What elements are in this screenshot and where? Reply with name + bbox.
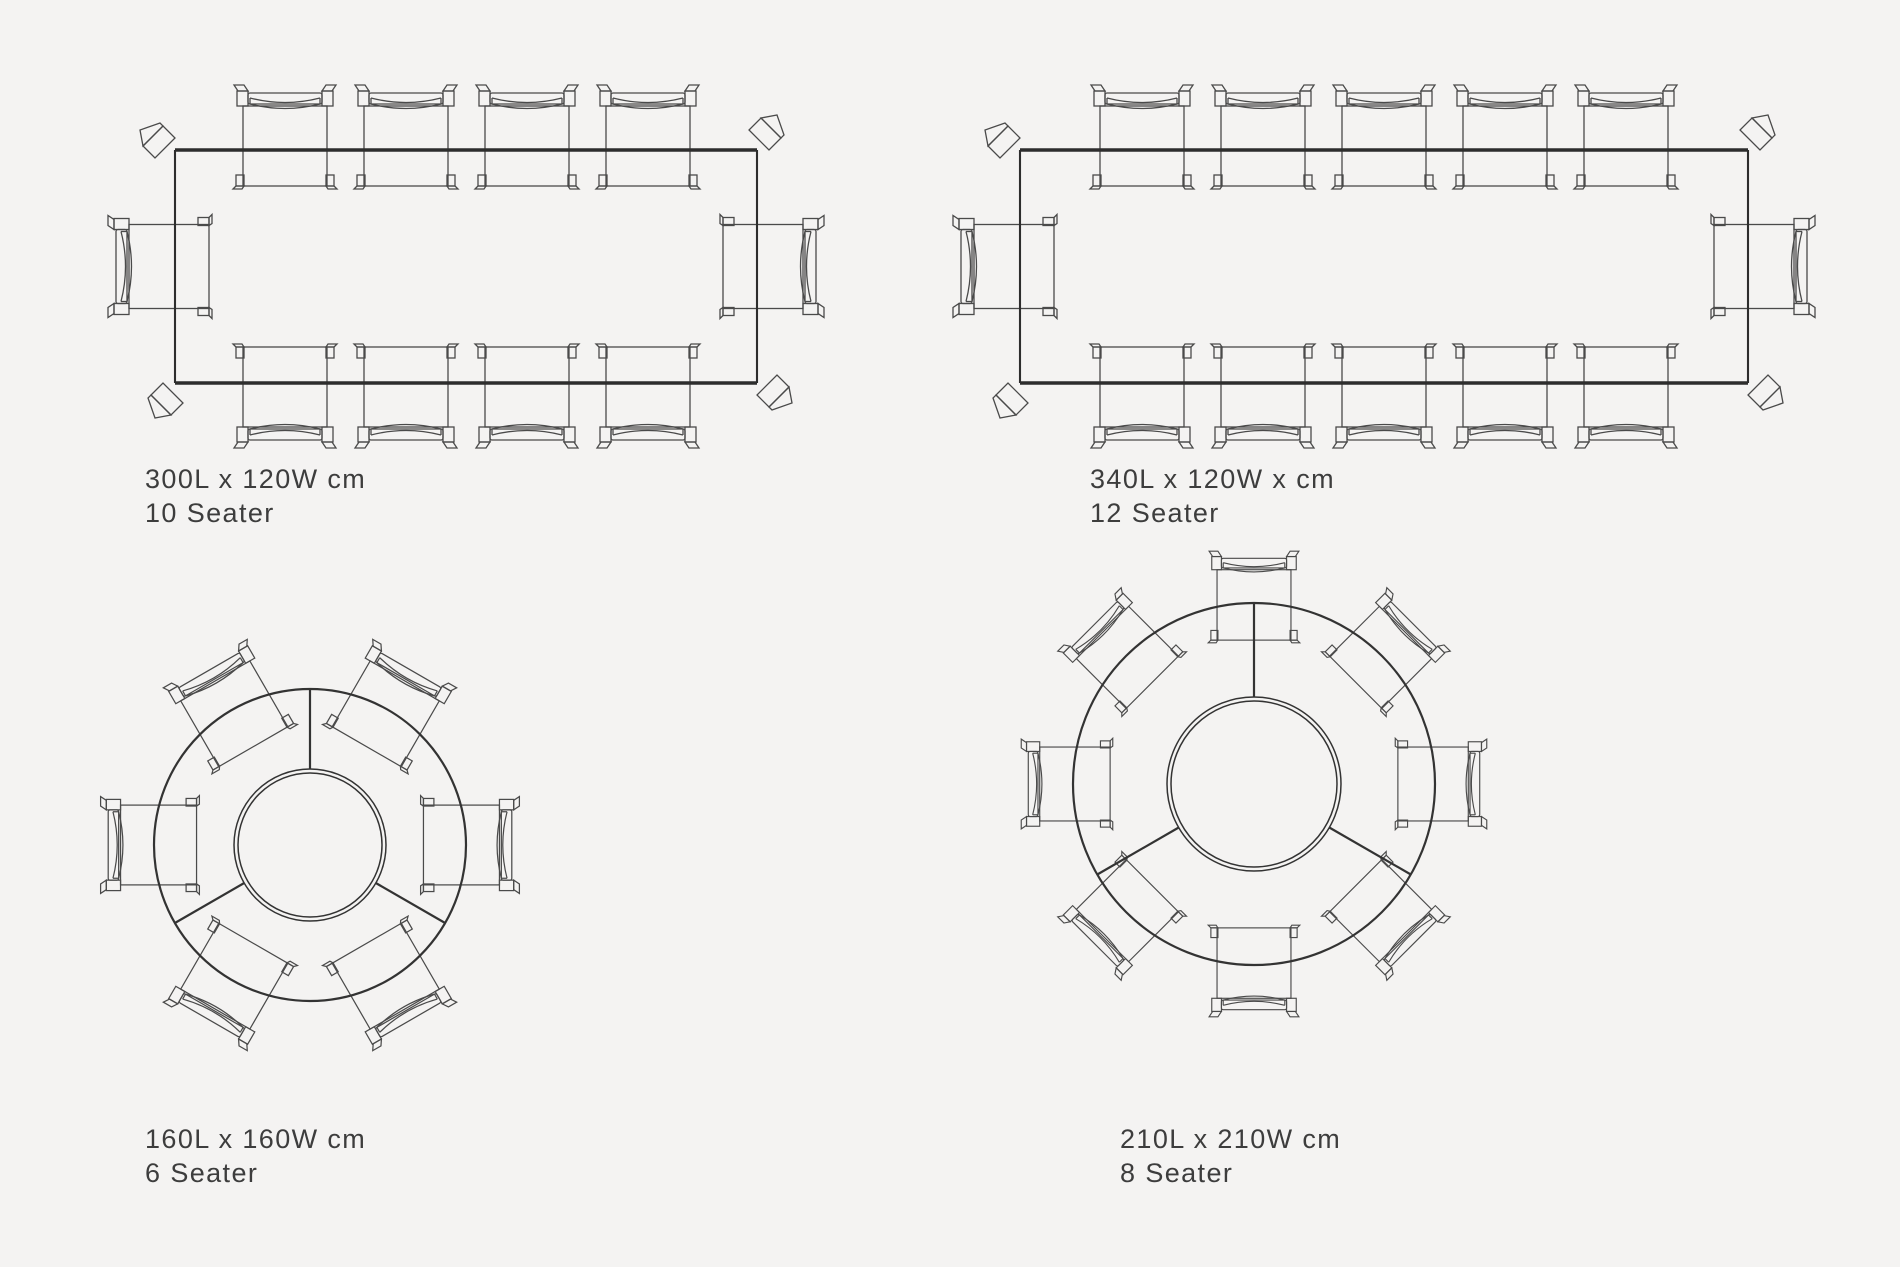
chair [596, 85, 700, 189]
label-round-8-seater: 210L x 210W cm 8 Seater [1120, 1122, 1341, 1190]
chair [953, 215, 1057, 319]
chair [1021, 738, 1113, 830]
table-corner-leg [148, 383, 183, 418]
chair [475, 344, 579, 448]
table-corner-leg [1740, 115, 1775, 150]
table-corner-leg [985, 123, 1020, 158]
label-dimensions: 210L x 210W cm [1120, 1122, 1341, 1156]
table-corner-leg [757, 375, 792, 410]
chair [1395, 738, 1487, 830]
label-rect-12-seater: 340L x 120W x cm 12 Seater [1090, 462, 1335, 530]
chair [475, 85, 579, 189]
table-top-round [1073, 603, 1435, 965]
chair [1453, 344, 1557, 448]
chair [1211, 85, 1315, 189]
diagram-rect-table-12-seater [953, 85, 1815, 448]
label-seater: 12 Seater [1090, 496, 1335, 530]
label-dimensions: 340L x 120W x cm [1090, 462, 1335, 496]
chair [354, 85, 458, 189]
label-seater: 6 Seater [145, 1156, 366, 1190]
chair [233, 85, 337, 189]
chair [1321, 851, 1450, 980]
chair [1057, 851, 1186, 980]
chair [1332, 344, 1436, 448]
table-corner-leg [140, 123, 175, 158]
chair [233, 344, 337, 448]
chair [1321, 587, 1450, 716]
chair [1574, 85, 1678, 189]
chair [1090, 85, 1194, 189]
chair [1574, 344, 1678, 448]
chair [1211, 344, 1315, 448]
chair [1453, 85, 1557, 189]
chair [1332, 85, 1436, 189]
furniture-layout-sheet: 300L x 120W cm 10 Seater 340L x 120W x c… [0, 0, 1900, 1267]
diagram-rect-table-10-seater [108, 85, 824, 448]
chair [1711, 215, 1815, 319]
label-dimensions: 300L x 120W cm [145, 462, 366, 496]
table-corner-leg [1748, 375, 1783, 410]
chair [1090, 344, 1194, 448]
diagram-round-table-8-seater [1021, 551, 1487, 1017]
label-dimensions: 160L x 160W cm [145, 1122, 366, 1156]
chair [421, 796, 520, 895]
label-seater: 10 Seater [145, 496, 366, 530]
label-rect-10-seater: 300L x 120W cm 10 Seater [145, 462, 366, 530]
label-round-6-seater: 160L x 160W cm 6 Seater [145, 1122, 366, 1190]
chair [1208, 925, 1300, 1017]
chair [1057, 587, 1186, 716]
table-corner-leg [749, 115, 784, 150]
diagram-round-table-6-seater [101, 639, 520, 1051]
chair [108, 215, 212, 319]
table-top-rectangular [175, 150, 757, 383]
label-seater: 8 Seater [1120, 1156, 1341, 1190]
chair [596, 344, 700, 448]
table-corner-leg [993, 383, 1028, 418]
table-top-rectangular [1020, 150, 1748, 383]
chair [354, 344, 458, 448]
floorplan-canvas [0, 0, 1900, 1267]
chair [101, 796, 200, 895]
chair [720, 215, 824, 319]
